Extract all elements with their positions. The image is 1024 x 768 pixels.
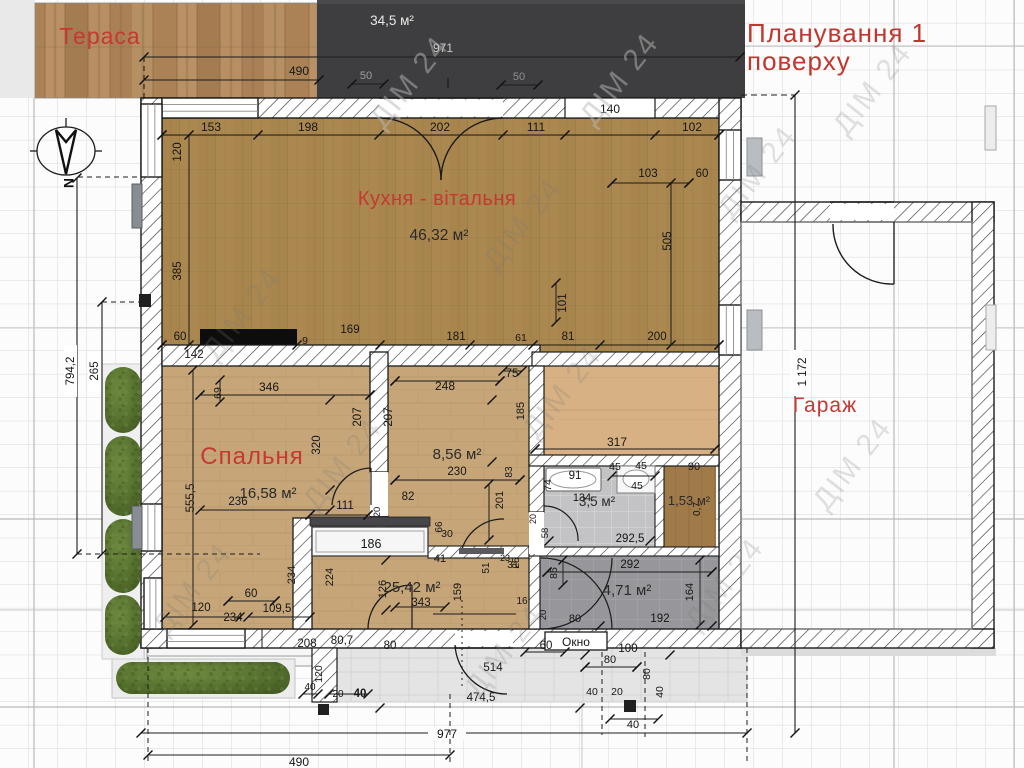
svg-text:292,5: 292,5 [616,533,645,545]
svg-text:25,42 м²: 25,42 м² [383,579,440,596]
svg-text:100: 100 [618,643,637,655]
svg-text:80: 80 [569,613,581,625]
svg-text:208: 208 [297,638,316,650]
svg-text:102: 102 [682,120,702,134]
svg-text:490: 490 [289,64,309,78]
svg-text:169: 169 [340,324,359,336]
svg-text:25: 25 [511,557,522,569]
svg-text:200: 200 [647,331,666,343]
svg-text:Окно: Окно [562,635,590,649]
svg-text:20: 20 [528,514,538,524]
svg-text:120: 120 [313,665,325,683]
svg-text:91: 91 [569,470,582,482]
svg-text:поверху: поверху [747,46,851,76]
svg-text:Кухня - вітальня: Кухня - вітальня [358,188,516,210]
svg-text:794,2: 794,2 [65,357,77,386]
svg-text:40: 40 [304,682,316,693]
svg-text:153: 153 [201,120,221,134]
svg-text:490: 490 [289,755,309,768]
svg-text:30: 30 [441,528,453,540]
svg-text:40: 40 [654,686,666,698]
svg-text:977: 977 [437,727,457,741]
svg-text:83: 83 [504,466,515,478]
svg-text:50: 50 [513,71,525,83]
svg-text:346: 346 [259,380,279,394]
svg-text:50: 50 [360,70,372,82]
svg-text:20: 20 [372,507,383,518]
svg-text:3,5 м²: 3,5 м² [579,494,616,509]
svg-text:75: 75 [506,368,519,380]
svg-text:202: 202 [430,120,450,134]
svg-text:74: 74 [542,479,554,491]
svg-text:198: 198 [298,120,318,134]
svg-text:61: 61 [515,332,527,344]
svg-text:41: 41 [434,553,446,565]
svg-text:81: 81 [562,331,575,343]
svg-text:186: 186 [361,537,382,551]
svg-text:40: 40 [627,719,639,731]
svg-text:45: 45 [609,461,621,473]
svg-text:234: 234 [223,612,243,624]
svg-text:80: 80 [641,668,653,680]
svg-text:1,53 м²: 1,53 м² [668,493,711,508]
svg-text:505: 505 [662,231,674,250]
svg-text:80,7: 80,7 [331,635,353,647]
svg-text:82: 82 [402,491,415,503]
svg-text:40: 40 [586,686,598,698]
svg-text:8,56 м²: 8,56 м² [433,446,482,463]
svg-text:34,5 м²: 34,5 м² [370,13,414,28]
svg-text:4,71 м²: 4,71 м² [603,582,652,599]
svg-text:109,5: 109,5 [263,603,292,615]
svg-text:60: 60 [245,588,258,600]
svg-text:60: 60 [540,640,553,652]
svg-text:181: 181 [446,331,465,343]
svg-text:60: 60 [174,331,187,343]
svg-text:20: 20 [332,689,344,700]
svg-text:80: 80 [604,654,616,666]
svg-text:69: 69 [212,387,224,399]
svg-text:Спальня: Спальня [200,443,303,470]
svg-text:58: 58 [540,528,551,539]
svg-text:120: 120 [172,142,184,161]
svg-text:192: 192 [650,613,669,625]
svg-text:317: 317 [607,435,627,449]
svg-text:385: 385 [172,261,184,280]
svg-text:Тераса: Тераса [59,23,140,49]
svg-text:20: 20 [611,686,623,698]
svg-text:90: 90 [688,461,700,473]
svg-text:224: 224 [324,568,336,586]
svg-text:111: 111 [336,500,353,512]
svg-text:51: 51 [481,562,492,574]
svg-text:234: 234 [286,566,298,584]
svg-text:45: 45 [631,480,643,492]
svg-text:101: 101 [557,293,569,312]
svg-text:46,32 м²: 46,32 м² [410,227,469,244]
svg-text:320: 320 [311,435,323,454]
svg-text:103: 103 [638,168,657,180]
svg-text:16,58 м²: 16,58 м² [239,485,296,502]
svg-text:60: 60 [696,168,709,180]
svg-text:1 172: 1 172 [797,358,809,387]
svg-text:45: 45 [635,460,647,472]
svg-text:265: 265 [89,361,101,380]
svg-text:207: 207 [383,407,395,426]
svg-text:Гараж: Гараж [793,394,857,417]
svg-text:555,5: 555,5 [185,484,197,513]
svg-text:230: 230 [447,466,466,478]
svg-text:23: 23 [500,553,510,563]
svg-text:159: 159 [452,583,464,601]
svg-text:201: 201 [494,491,506,509]
svg-text:80: 80 [384,640,397,652]
svg-text:111: 111 [527,120,546,134]
svg-text:292: 292 [620,559,639,571]
svg-text:9: 9 [302,335,308,347]
